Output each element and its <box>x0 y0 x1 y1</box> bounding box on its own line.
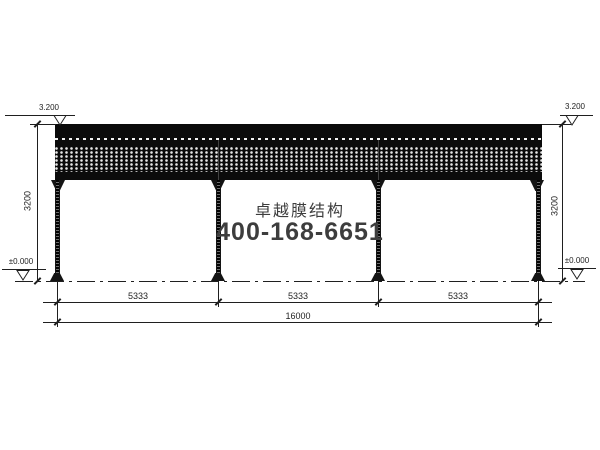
elevation-drawing: 3200 3200 5333 5333 5333 16000 3.200 3.2… <box>0 0 600 450</box>
bay-dim-label: 5333 <box>418 292 498 301</box>
ground-centerline <box>15 281 585 282</box>
level-label-roof-left: 3.200 <box>24 104 74 112</box>
canopy-truss-band <box>55 124 542 180</box>
total-dim-label: 16000 <box>258 312 338 321</box>
column-base-plate <box>371 273 385 281</box>
column-base-plate <box>531 273 545 281</box>
bay-separator <box>378 138 379 180</box>
level-triangle-icon <box>570 269 584 280</box>
dimension-line-total <box>43 322 552 323</box>
dimension-line-bays <box>43 302 552 303</box>
truss-top-chord <box>55 124 542 137</box>
truss-lattice-dots <box>55 147 542 172</box>
bay-dim-label: 5333 <box>98 292 178 301</box>
level-label-ground-left: ±0.000 <box>0 258 42 266</box>
level-label-ground-right: ±0.000 <box>556 257 598 265</box>
truss-bottom-chord <box>55 172 542 180</box>
bay-separator <box>218 138 219 180</box>
watermark-phone-number: 400-168-6651 <box>0 219 600 246</box>
level-label-roof-right: 3.200 <box>552 103 598 111</box>
column-base-plate <box>50 273 64 281</box>
level-triangle-icon <box>16 270 30 281</box>
column-base-plate <box>211 273 225 281</box>
level-triangle-icon <box>565 115 579 126</box>
bay-dim-label: 5333 <box>258 292 338 301</box>
level-triangle-icon <box>53 115 67 126</box>
